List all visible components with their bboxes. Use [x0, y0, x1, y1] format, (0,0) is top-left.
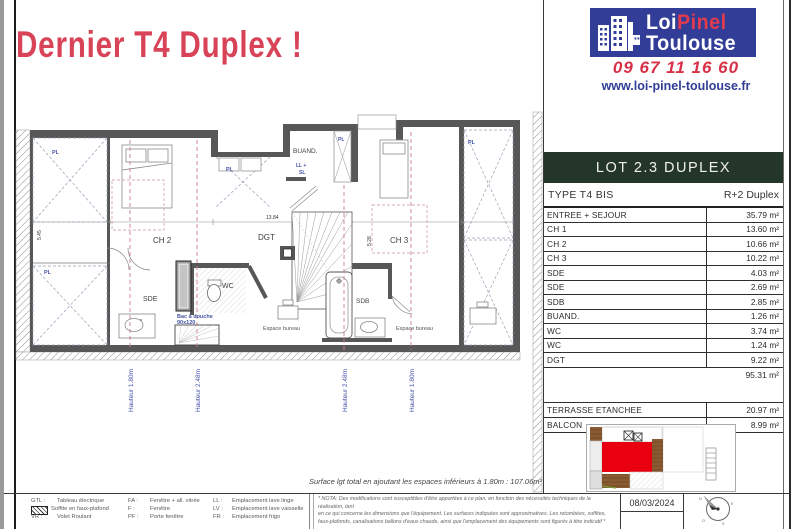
table-row: BUAND.1.26 m² — [544, 310, 783, 325]
legend-key: GTL : — [31, 498, 45, 504]
legend-label: Porte fenêtre — [150, 514, 184, 520]
bathtub — [326, 272, 352, 338]
dim-5-45: 5.45 — [37, 230, 43, 240]
row-label: BUAND. — [544, 310, 706, 324]
ch3-lowheight-zone — [372, 205, 427, 253]
table-row: SDE2.69 m² — [544, 281, 783, 296]
wc-angled-wall — [249, 266, 266, 298]
site-plan-thumbnail — [586, 424, 736, 492]
footer-divider-3 — [683, 494, 684, 529]
bed-ch3 — [380, 140, 408, 198]
legend-key: LV : — [213, 506, 223, 512]
label-wc: WC — [222, 283, 234, 290]
compass-o: O — [702, 519, 705, 523]
shower-column — [176, 261, 191, 311]
surface-note: Surface lgt total en ajoutant les espace… — [258, 477, 542, 486]
label-sde: SDE — [143, 296, 158, 303]
rooflight-outline — [358, 115, 396, 129]
legend-label: Emplacement lave vaisselle — [232, 506, 304, 512]
table-row: SDE4.03 m² — [544, 266, 783, 281]
phone-number: 09 67 11 16 60 — [590, 58, 762, 78]
legend-label: Fenêtre + all. vitrée — [150, 498, 200, 504]
logo-word-loi: Loi — [646, 11, 677, 34]
logo-word-toulouse: Toulouse — [646, 33, 736, 54]
row-value: 1.26 m² — [706, 310, 783, 324]
label-buand: BUAND. — [293, 148, 318, 155]
row-label: CH 2 — [544, 237, 706, 251]
row-label: SDE — [544, 281, 706, 295]
label-sl: SL — [299, 170, 305, 176]
row-label: TERRASSE ETANCHEE — [544, 403, 706, 417]
legend-key: FR : — [213, 514, 224, 520]
page-edge — [0, 0, 4, 529]
nota-text: * NOTA: Des modifications sont susceptib… — [318, 496, 616, 526]
row-label: WC — [544, 324, 706, 338]
label-bac-2: 90x120 — [177, 320, 195, 326]
legend-key: F : — [128, 506, 135, 512]
plan-walls — [30, 120, 520, 352]
legend-key: FA : — [128, 498, 138, 504]
nota-line: * NOTA: Des modifications sont susceptib… — [318, 496, 616, 511]
compass-icon: N E S O — [688, 494, 758, 529]
height-label-4: Hauteur 1.80m — [409, 369, 416, 412]
row-label: DGT — [544, 353, 706, 367]
highlighted-lot — [602, 442, 652, 472]
compass-e: E — [731, 502, 734, 506]
row-label: SDB — [544, 295, 706, 309]
table-row: CH 310.22 m² — [544, 252, 783, 267]
row-value: 3.74 m² — [706, 324, 783, 338]
row-value: 10.22 m² — [706, 252, 783, 266]
legend-label: Tableau électrique — [57, 498, 104, 504]
website-url: www.loi-pinel-toulouse.fr — [586, 79, 766, 93]
label-sdb: SDB — [356, 298, 369, 305]
label-pl-4: PL — [338, 137, 344, 143]
table-row: CH 210.66 m² — [544, 237, 783, 252]
row-value: 20.97 m² — [706, 403, 783, 417]
row-value: 9.22 m² — [706, 353, 783, 367]
legend-key: LL : — [213, 498, 222, 504]
row-value: 2.85 m² — [706, 295, 783, 309]
table-row: SDB2.85 m² — [544, 295, 783, 310]
compass-s: S — [722, 522, 725, 526]
lot-type-value: R+2 Duplex — [724, 189, 783, 201]
nota-line: en ce qui concerne les dimensions que l'… — [318, 511, 616, 519]
row-value: 1.24 m² — [706, 339, 783, 353]
right-border-inner — [783, 0, 784, 529]
floor-plan: 13.84 5.45 5.28 — [14, 105, 544, 495]
flyer-sheet: Dernier T4 Duplex ! — [0, 0, 800, 529]
height-label-1: Hauteur 1.80m — [128, 369, 135, 412]
row-label: CH 3 — [544, 252, 706, 266]
height-label-2: Hauteur 2.48m — [195, 369, 202, 412]
total-surface: 95.31 m² — [544, 368, 783, 403]
lot-type-label: TYPE T4 BIS — [544, 189, 724, 201]
label-dgt: DGT — [258, 233, 275, 242]
row-value: 2.69 m² — [706, 281, 783, 295]
height-label-3: Hauteur 2.48m — [342, 369, 349, 412]
compass-n: N — [699, 497, 702, 501]
row-label: SDE — [544, 266, 706, 280]
table-row-terrasse: TERRASSE ETANCHEE20.97 m² — [544, 403, 783, 418]
buildings-icon — [596, 12, 642, 54]
nota-line: faux-plafonds, canalisations ballons d'e… — [318, 519, 616, 527]
legend-key: PF : — [128, 514, 139, 520]
right-border-outer — [789, 0, 791, 529]
legend-key: VR : — [31, 514, 42, 520]
legend-label: Volet Roulant — [57, 514, 91, 520]
wc-room — [194, 268, 246, 313]
label-pl-5: PL — [468, 140, 476, 146]
table-row: WC3.74 m² — [544, 324, 783, 339]
row-value: 10.66 m² — [706, 237, 783, 251]
table-row: ENTREE + SEJOUR35.79 m² — [544, 208, 783, 223]
row-value: 4.03 m² — [706, 266, 783, 280]
label-ch3: CH 3 — [390, 236, 409, 245]
label-bureau-1: Espace bureau — [263, 326, 300, 332]
table-row: DGT9.22 m² — [544, 353, 783, 368]
sde-sink — [119, 314, 155, 338]
bed-ch2 — [122, 145, 172, 208]
logo-wordmark: LoiPinel Toulouse — [646, 12, 736, 54]
lot-table-header: LOT 2.3 DUPLEX — [544, 152, 783, 183]
footer-divider-1b — [313, 494, 314, 529]
legend-label: Soffite en faux-plafond — [51, 506, 109, 512]
label-ll: LL + — [296, 163, 306, 169]
shaft-column — [280, 246, 295, 260]
label-ch2: CH 2 — [153, 236, 172, 245]
logo-word-pinel: Pinel — [677, 11, 727, 34]
lot-type-row: TYPE T4 BIS R+2 Duplex — [544, 183, 783, 208]
page-title: Dernier T4 Duplex ! — [16, 24, 303, 66]
lot-table: LOT 2.3 DUPLEX TYPE T4 BIS R+2 Duplex EN… — [544, 152, 783, 433]
date-box: 08/03/2024 — [621, 494, 684, 512]
legend-label: Emplacement frigo — [232, 514, 280, 520]
row-label: WC — [544, 339, 706, 353]
label-pl-1: PL — [52, 150, 60, 156]
row-value: 35.79 m² — [706, 208, 783, 222]
row-label: ENTREE + SEJOUR — [544, 208, 706, 222]
dim-13-84: 13.84 — [266, 215, 279, 221]
footer-divider-1 — [309, 494, 310, 529]
table-row: WC1.24 m² — [544, 339, 783, 354]
legend-label: Emplacement lave linge — [232, 498, 294, 504]
label-pl-2: PL — [44, 270, 52, 276]
row-value: 13.60 m² — [706, 223, 783, 237]
sdb-basin — [355, 318, 385, 337]
logo: LoiPinel Toulouse — [590, 8, 756, 57]
table-row: CH 113.60 m² — [544, 223, 783, 238]
shower-tray — [175, 325, 219, 345]
row-label: CH 1 — [544, 223, 706, 237]
label-pl-3: PL — [226, 167, 234, 173]
legend-label: Fenêtre — [150, 506, 170, 512]
label-bureau-2: Espace bureau — [396, 326, 433, 332]
